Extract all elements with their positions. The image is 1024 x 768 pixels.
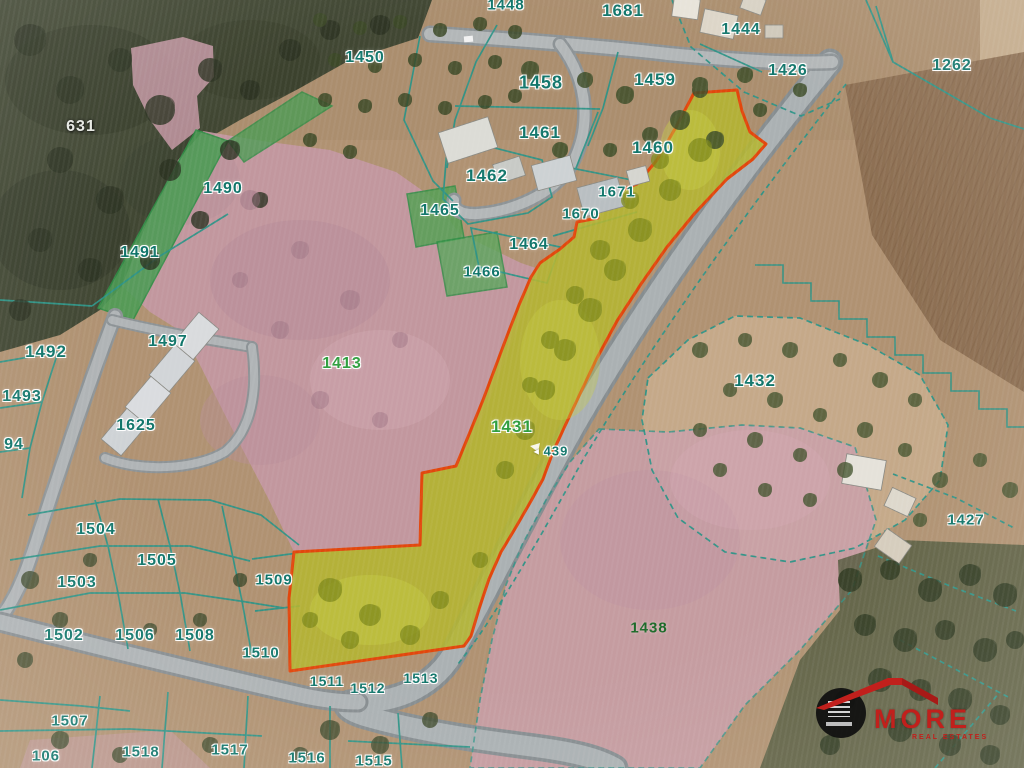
satellite-map xyxy=(0,0,1024,768)
car xyxy=(464,36,473,43)
map-viewport: 6311490149114921493941497162514501448168… xyxy=(0,0,1024,768)
